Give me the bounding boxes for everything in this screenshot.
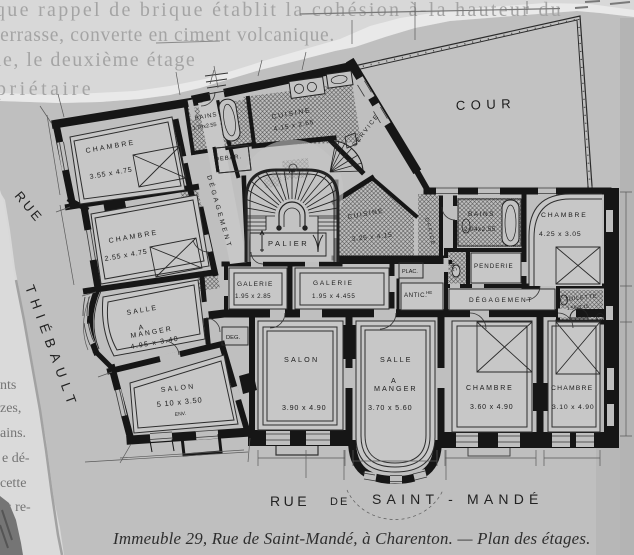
svg-text:2.04x2.55: 2.04x2.55 — [464, 226, 496, 233]
svg-text:cette: cette — [0, 476, 26, 491]
svg-text:3.60 x 4.90: 3.60 x 4.90 — [470, 404, 513, 411]
svg-text:GALERIE: GALERIE — [237, 281, 274, 288]
svg-text:SALON: SALON — [284, 355, 319, 364]
svg-text:e dé-: e dé- — [2, 451, 30, 466]
svg-text:SALLE: SALLE — [380, 355, 412, 364]
svg-text:CHAMBRE: CHAMBRE — [466, 385, 514, 392]
svg-text:GALERIE: GALERIE — [313, 280, 354, 287]
svg-text:4.25 x 3.05: 4.25 x 3.05 — [539, 231, 581, 238]
svg-text:nts: nts — [0, 378, 16, 393]
svg-text:SAINT - MANDÉ: SAINT - MANDÉ — [372, 491, 544, 507]
svg-text:HE: HE — [426, 290, 432, 295]
svg-text:ains.: ains. — [0, 426, 26, 441]
svg-text:PENDERIE: PENDERIE — [474, 263, 514, 270]
svg-text:1.95 x 4.455: 1.95 x 4.455 — [312, 293, 356, 300]
svg-text:zes,: zes, — [0, 401, 21, 416]
svg-text:W: W — [288, 169, 294, 175]
svg-text:Immeuble 29, Rue de Saint-Mand: Immeuble 29, Rue de Saint-Mandé, à Chare… — [112, 529, 591, 548]
svg-text:DE: DE — [330, 496, 349, 508]
svg-text:COUR: COUR — [456, 96, 517, 113]
svg-text:priétaire: priétaire — [0, 78, 94, 100]
svg-text:BAINS: BAINS — [468, 211, 495, 218]
svg-text:le, le deuxième étage: le, le deuxième étage — [0, 49, 196, 71]
svg-text:DEG.: DEG. — [226, 335, 241, 341]
svg-text:PLAC.: PLAC. — [402, 269, 418, 275]
svg-text:ENV.: ENV. — [175, 411, 187, 418]
svg-text:1.95 x 2.85: 1.95 x 2.85 — [235, 293, 271, 300]
svg-text:CHAMBRE: CHAMBRE — [541, 212, 588, 219]
svg-text:RUE: RUE — [270, 493, 310, 509]
svg-text:3.70 x 5.60: 3.70 x 5.60 — [368, 403, 412, 412]
svg-text:PALIER: PALIER — [268, 239, 309, 248]
svg-text:3.90 x 4.90: 3.90 x 4.90 — [282, 403, 326, 412]
svg-text:3.10 x 4.90: 3.10 x 4.90 — [552, 404, 594, 411]
svg-text:CHAMBRE: CHAMBRE — [551, 385, 593, 392]
svg-text:ANTIC.: ANTIC. — [404, 292, 427, 299]
svg-text:MANGER: MANGER — [374, 384, 418, 393]
svg-text:DÉGAGEMENT: DÉGAGEMENT — [469, 295, 533, 304]
